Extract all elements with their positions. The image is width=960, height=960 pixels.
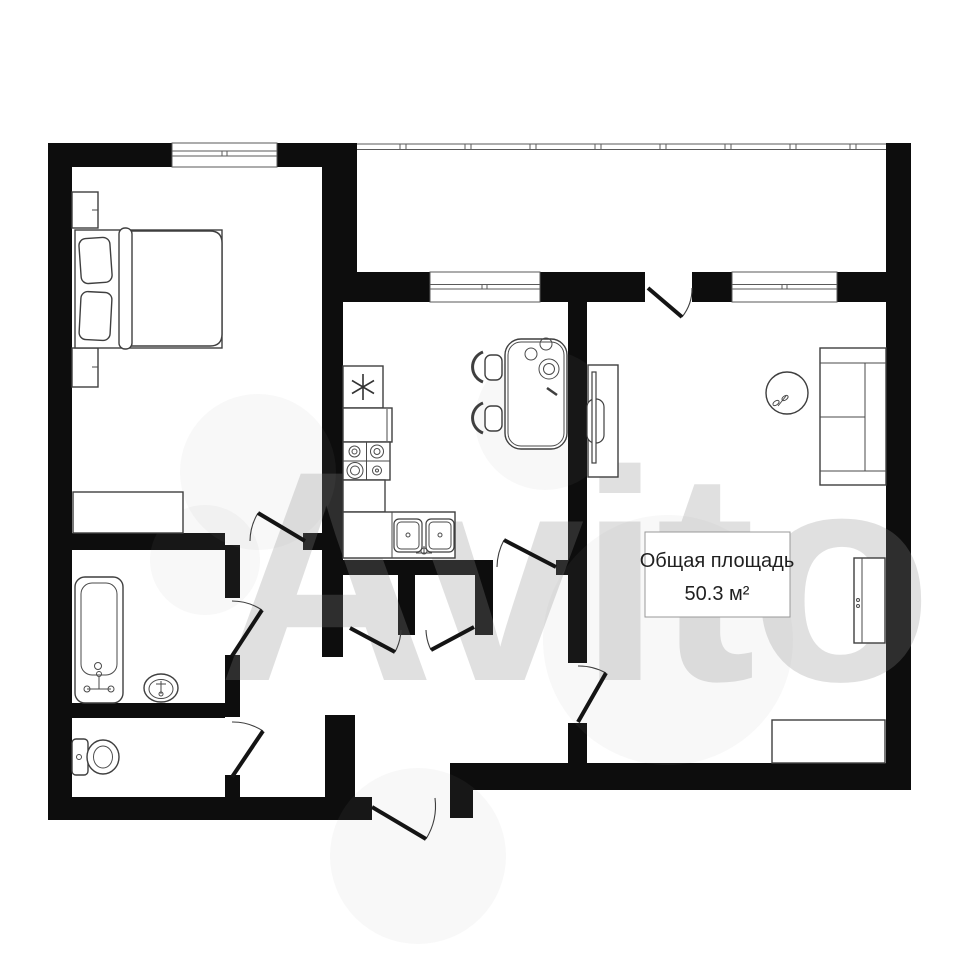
wall-exterior-bottom-left bbox=[48, 797, 372, 820]
sofa bbox=[820, 348, 886, 485]
wall-exterior-left bbox=[48, 143, 72, 820]
wall-balcony-parapet-4 bbox=[837, 272, 886, 302]
toilet-bowl bbox=[87, 740, 119, 774]
bed-blanket bbox=[131, 231, 222, 346]
area-label-value: 50.3 м² bbox=[685, 583, 750, 605]
wall-balcony-parapet-1 bbox=[357, 272, 430, 302]
tv-stand bbox=[587, 365, 618, 477]
wall-bathroom-toilet-divider bbox=[48, 703, 225, 718]
toilet-tank bbox=[72, 739, 88, 775]
living-wardrobe bbox=[854, 558, 885, 643]
wall-exterior-bottom-right bbox=[473, 763, 911, 790]
sideboard bbox=[772, 720, 885, 763]
bathroom-furniture bbox=[75, 577, 178, 703]
pillow bbox=[79, 291, 112, 341]
plant-table bbox=[766, 372, 808, 414]
balcony-glazing bbox=[357, 144, 886, 150]
bed-fold bbox=[119, 228, 132, 349]
balcony-door bbox=[648, 288, 692, 317]
area-label: Общая площадь 50.3 м² bbox=[640, 532, 795, 617]
floorplan-page: Avito bbox=[0, 0, 960, 960]
window-kitchen bbox=[430, 272, 540, 302]
watermark-circle bbox=[330, 768, 506, 944]
kitchen-cabinet bbox=[343, 480, 385, 512]
tv-screen bbox=[592, 372, 596, 463]
kitchen-table bbox=[505, 338, 567, 449]
wall-bedroom-balcony-junction bbox=[322, 143, 357, 302]
window-living bbox=[732, 272, 837, 302]
wall-balcony-parapet-2 bbox=[540, 272, 645, 302]
kitchen-chair bbox=[473, 352, 502, 382]
toilet-furniture bbox=[72, 739, 119, 775]
wall-bathroom-right-3 bbox=[225, 775, 240, 797]
bedroom-wardrobe bbox=[73, 492, 183, 533]
kitchen-counter-1 bbox=[343, 408, 392, 442]
window-bedroom bbox=[172, 143, 277, 167]
pillow bbox=[79, 237, 113, 284]
wall-balcony-parapet-3 bbox=[692, 272, 732, 302]
floorplan-svg: Avito bbox=[0, 0, 960, 960]
area-label-title: Общая площадь bbox=[640, 550, 795, 572]
wall-bedroom-top-left bbox=[48, 143, 172, 167]
